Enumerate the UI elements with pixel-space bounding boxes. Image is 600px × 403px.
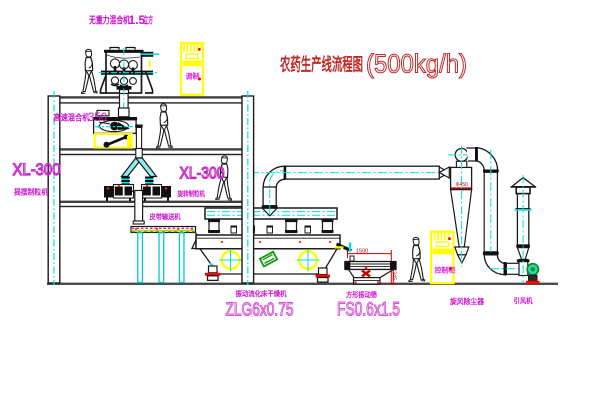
svg-text:旋转制粒机: 旋转制粒机 — [177, 189, 206, 198]
svg-text:XL-300: XL-300 — [180, 164, 225, 183]
svg-text:皮带输送机: 皮带输送机 — [149, 212, 181, 221]
svg-text:振动流化床干燥机: 振动流化床干燥机 — [236, 289, 287, 298]
svg-text:农药生产线流程图: 农药生产线流程图 — [279, 55, 363, 75]
svg-text:1500: 1500 — [356, 249, 368, 255]
svg-text:控制柜: 控制柜 — [435, 266, 456, 275]
svg-text:高速混合机: 高速混合机 — [54, 113, 90, 123]
svg-text:FS0.6x1.5: FS0.6x1.5 — [337, 300, 400, 321]
svg-text:立方: 立方 — [144, 15, 154, 27]
svg-text:(500kg/h): (500kg/h) — [366, 49, 467, 79]
svg-text:ZLG6x0.75: ZLG6x0.75 — [226, 300, 294, 320]
svg-text:XL-300: XL-300 — [13, 160, 61, 179]
svg-text:引风机: 引风机 — [514, 296, 533, 305]
svg-text:旋风除尘器: 旋风除尘器 — [449, 297, 485, 306]
svg-text:调制: 调制 — [186, 72, 200, 81]
svg-text:无重力混合机: 无重力混合机 — [88, 15, 130, 27]
svg-text:摇摆制粒机: 摇摆制粒机 — [14, 188, 49, 197]
svg-text:方形振动筛: 方形振动筛 — [346, 290, 377, 299]
svg-text:350: 350 — [88, 112, 107, 124]
svg-text:345: 345 — [391, 271, 397, 280]
